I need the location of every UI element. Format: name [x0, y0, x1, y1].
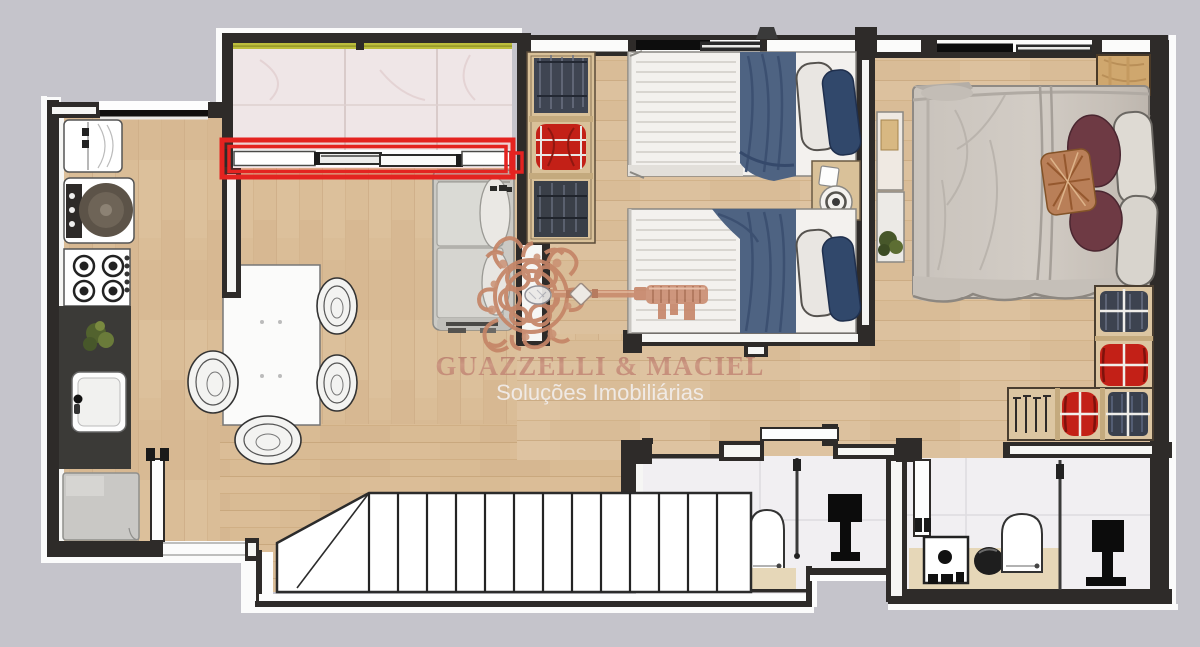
svg-text:Soluções Imobiliárias: Soluções Imobiliárias	[496, 380, 704, 405]
svg-text:GUAZZELLI & MACIEL: GUAZZELLI & MACIEL	[435, 351, 764, 381]
